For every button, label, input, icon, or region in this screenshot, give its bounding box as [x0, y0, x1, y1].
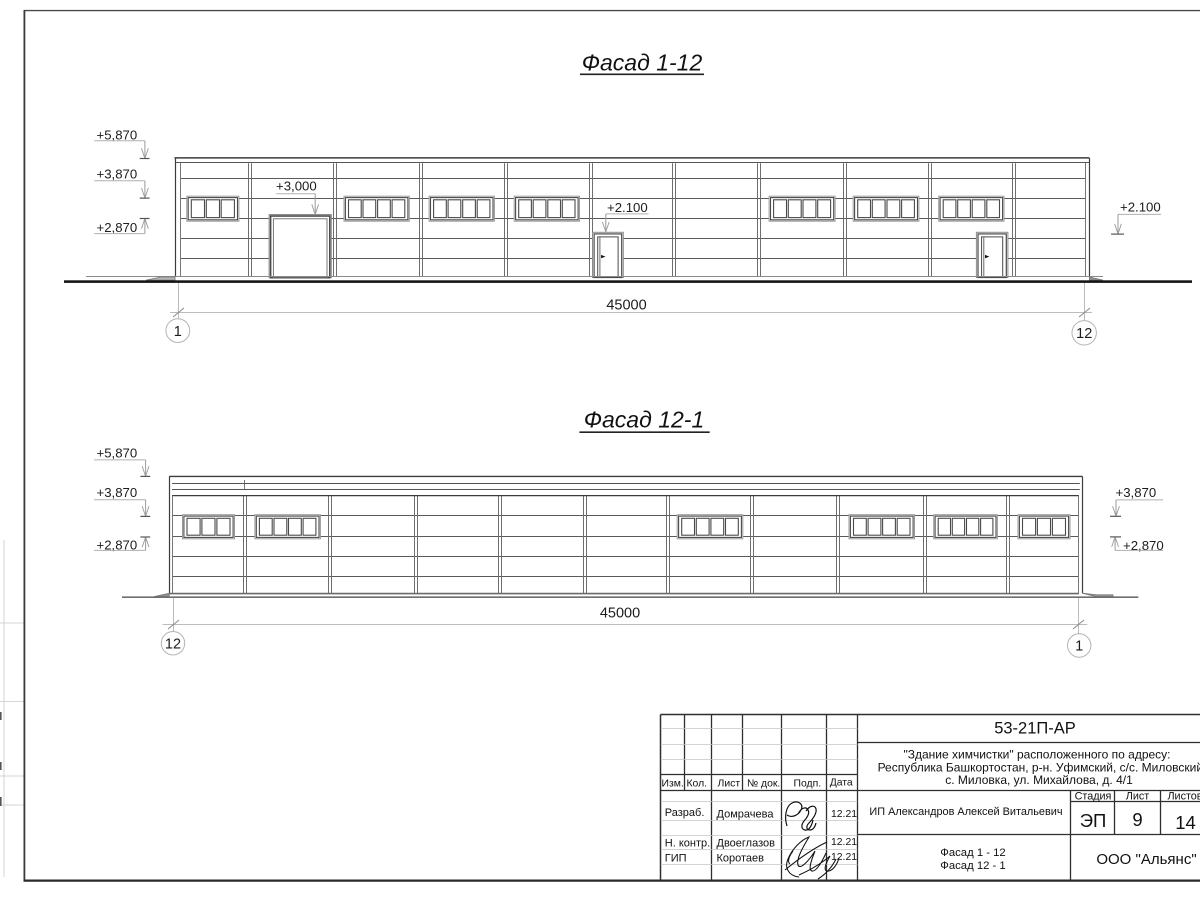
svg-text:№ док.: № док.: [747, 778, 780, 789]
svg-text:Лист: Лист: [1126, 791, 1150, 803]
svg-text:+2,870: +2,870: [97, 220, 138, 235]
svg-text:45000: 45000: [600, 605, 640, 621]
svg-text:Лист: Лист: [718, 778, 741, 789]
svg-text:Фасад 12 - 1: Фасад 12 - 1: [940, 860, 1005, 872]
svg-text:+2.100: +2.100: [607, 200, 648, 215]
svg-text:Фасад 1-12: Фасад 1-12: [582, 50, 703, 76]
svg-text:45000: 45000: [606, 297, 646, 313]
svg-text:+3,000: +3,000: [276, 179, 317, 194]
svg-text:Листов: Листов: [1167, 791, 1200, 803]
svg-text:Дата: Дата: [830, 778, 853, 789]
svg-text:53-21П-АР: 53-21П-АР: [994, 720, 1076, 738]
svg-text:+3,870: +3,870: [97, 485, 138, 500]
svg-text:+3,870: +3,870: [1116, 485, 1157, 500]
svg-text:Кол.: Кол.: [687, 778, 708, 789]
svg-text:12.21: 12.21: [831, 809, 857, 820]
svg-text:1: 1: [174, 324, 182, 340]
svg-text:12: 12: [1076, 326, 1092, 342]
svg-text:Изм.: Изм.: [662, 778, 684, 789]
svg-text:Фасад 1 - 12: Фасад 1 - 12: [940, 847, 1005, 859]
svg-text:12: 12: [165, 636, 181, 652]
svg-text:12.21: 12.21: [831, 837, 857, 848]
svg-text:Коротаев: Коротаев: [717, 852, 765, 864]
svg-text:Н. контр.: Н. контр.: [665, 838, 710, 850]
svg-text:Домрачева: Домрачева: [717, 809, 775, 821]
svg-text:+2.100: +2.100: [1120, 200, 1161, 215]
svg-text:Стадия: Стадия: [1075, 791, 1112, 803]
svg-text:+5,870: +5,870: [97, 446, 138, 461]
svg-text:+3,870: +3,870: [97, 167, 138, 182]
svg-text:с. Миловка, ул. Михайлова, д.: с. Миловка, ул. Михайлова, д. 4/1: [945, 773, 1133, 787]
svg-text:ЭП: ЭП: [1080, 810, 1107, 831]
svg-text:ООО "Альянс": ООО "Альянс": [1096, 851, 1196, 868]
svg-text:Разраб.: Разраб.: [665, 807, 705, 819]
svg-text:14: 14: [1175, 812, 1196, 833]
svg-text:ИП Александров Алексей Виталье: ИП Александров Алексей Витальевич: [869, 806, 1062, 818]
svg-text:1: 1: [1075, 639, 1083, 655]
svg-text:Фасад 12-1: Фасад 12-1: [584, 407, 705, 433]
svg-text:ГИП: ГИП: [665, 852, 687, 864]
svg-text:Двоеглазов: Двоеглазов: [717, 838, 776, 850]
svg-text:9: 9: [1132, 809, 1142, 830]
svg-text:Подп.: Подп.: [794, 778, 822, 789]
